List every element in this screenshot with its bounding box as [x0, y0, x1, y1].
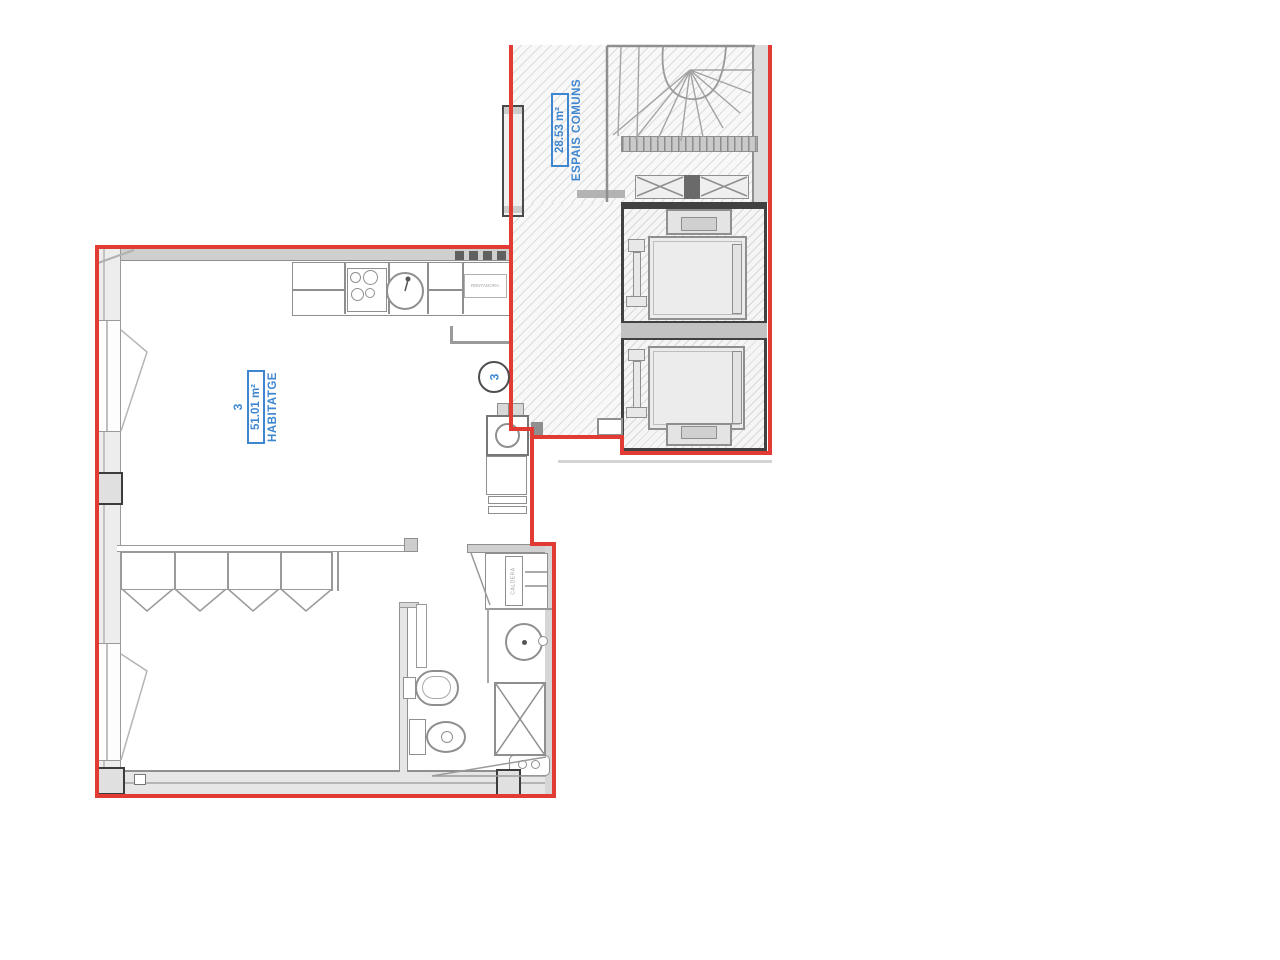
floor-plan-canvas: RENTADORA CALDERA	[0, 0, 1280, 960]
bottom-wall-marker	[134, 774, 146, 785]
bath-sink-tap	[538, 636, 548, 646]
elevator-1-counterweight	[633, 252, 641, 299]
left-window-lower	[97, 643, 121, 761]
elevator-divider-wall	[621, 321, 767, 340]
casement-lower	[121, 654, 147, 760]
cooktop-burner-1	[350, 272, 361, 283]
kitchen-divider-1	[344, 263, 346, 314]
washer-label: RENTADORA	[463, 280, 507, 290]
common-area-shadow-line	[558, 460, 772, 463]
elevator-door-sill-2-step	[681, 426, 717, 439]
common-line-right	[768, 45, 772, 455]
entry-open-shelf-box	[486, 456, 527, 495]
property-line-left	[95, 245, 99, 798]
left-window-upper	[97, 320, 121, 432]
elevator-cab-1-inner	[653, 241, 742, 315]
bottom-left-column	[97, 767, 125, 795]
apartment-unit-number: 3	[231, 404, 245, 411]
kitchen-sink	[386, 272, 424, 310]
casement-upper	[121, 330, 147, 431]
top-wall-mullion-4	[497, 251, 506, 260]
elevator-door-sill-1-step	[681, 217, 717, 231]
door-number-text: 3	[487, 374, 501, 381]
entry-shelf-bar-1	[488, 496, 527, 504]
property-line-mid-vertical	[530, 427, 534, 546]
apartment-room-name: HABITATGE	[267, 372, 279, 442]
common-area-box: 28.53 m²	[551, 93, 569, 167]
washer-label-text: RENTADORA	[471, 283, 499, 288]
wardrobe-divider-3	[280, 553, 282, 589]
common-line-bottom	[620, 451, 772, 455]
elevator-2-guide-top	[628, 349, 645, 361]
wardrobe-door-folds	[122, 589, 332, 611]
wardrobe-divider-1	[174, 553, 176, 589]
boiler-label-wrap: CALDERA	[497, 562, 531, 600]
common-line-bottom-left	[530, 435, 624, 439]
boiler-label-text: CALDERA	[511, 567, 517, 594]
wardrobe-rail-end-post	[404, 538, 418, 552]
door-number-badge: 3	[478, 361, 510, 393]
common-area-floor-corridor	[513, 203, 623, 437]
common-wall-window	[502, 105, 524, 217]
common-wall-window-cap-bottom	[504, 206, 522, 213]
top-wall-mullion-3	[483, 251, 492, 260]
kitchen-stub-horizontal	[452, 341, 513, 344]
shower-tray	[494, 682, 546, 756]
common-area-name: ESPAIS COMUNS	[571, 79, 583, 181]
top-wall-mullion-2	[469, 251, 478, 260]
bath-closet-bottom-line	[485, 608, 553, 610]
bottom-wall-inner-line	[98, 782, 553, 784]
wardrobe-end-panel-1	[331, 551, 333, 591]
common-area-label: 28.53 m² ESPAIS COMUNS	[548, 70, 586, 190]
wardrobe-rail	[117, 545, 408, 552]
bath-closet-shelf-2	[525, 585, 547, 587]
wardrobe-divider-2	[227, 553, 229, 589]
shower-screen	[416, 604, 427, 668]
stair-landing-edge	[621, 136, 758, 152]
corridor-wall-stub	[577, 190, 625, 198]
elevator-2-rail-right	[732, 351, 742, 424]
kitchen-cabinet-shelf-line-2	[429, 289, 462, 291]
toilet-drain	[441, 731, 453, 743]
cooktop-burner-2	[363, 270, 378, 285]
common-wall-window-cap-top	[504, 107, 522, 114]
bath-closet-shelf-1	[525, 571, 547, 573]
bath-drawer-knob-1	[518, 760, 527, 769]
property-line-bottom	[95, 794, 556, 798]
left-window-lower-glass-line	[106, 644, 108, 760]
elevator-1-guide-top	[628, 239, 645, 252]
apartment-area-box: 51.01 m²	[247, 370, 265, 444]
stair-guard-post	[684, 175, 700, 199]
cooktop-burner-4	[365, 288, 375, 298]
top-wall-mullion-1	[455, 251, 464, 260]
bath-column-wall-line	[487, 608, 489, 683]
toilet-tank	[409, 719, 426, 755]
bidet-bowl-inner	[422, 676, 451, 699]
elevator-2-guide-bottom	[626, 407, 647, 418]
wardrobe-end-panel-2	[337, 551, 339, 591]
apartment-label: 3 51.01 m² HABITATGE	[226, 349, 284, 465]
elevator-1-rail-right	[732, 244, 742, 314]
elevator-cab-2-inner	[653, 351, 740, 425]
stair-right-wall	[752, 45, 768, 203]
left-window-upper-glass-line	[106, 321, 108, 431]
elevator-1-guide-bottom	[626, 296, 647, 307]
apartment-top-wall	[97, 249, 510, 261]
kitchen-cabinet-shelf-line-1	[293, 289, 344, 291]
elevator-2-counterweight	[633, 361, 641, 410]
bathroom-column	[496, 769, 521, 796]
property-line-right-lower	[552, 542, 556, 798]
entry-shelf-bar-2	[488, 506, 527, 514]
left-wall-column	[96, 472, 123, 505]
property-line-top	[95, 245, 513, 249]
cooktop-burner-3	[351, 288, 364, 301]
corridor-door-sill	[597, 418, 623, 436]
bath-drawer-knob-2	[531, 760, 540, 769]
bath-sink-drain	[522, 640, 527, 645]
